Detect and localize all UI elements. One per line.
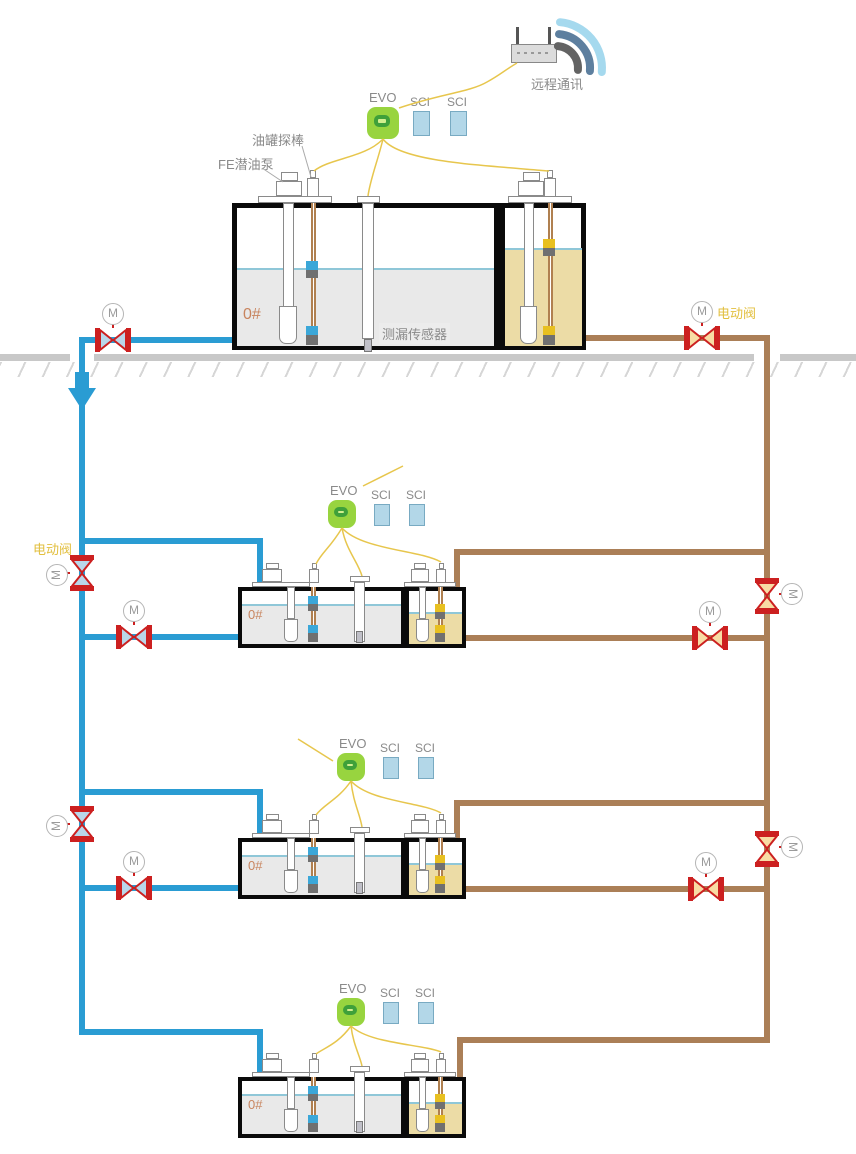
probe-head: [309, 1059, 319, 1073]
fuel-grade-label: 0#: [248, 858, 262, 873]
ground-line: [94, 354, 754, 361]
sci-module: [383, 1002, 399, 1024]
sci-module-label: SCI: [380, 986, 400, 1000]
sci-module: [418, 1002, 434, 1024]
pump-body: [284, 870, 298, 893]
pump-motor-cap: [266, 563, 279, 569]
probe-float-anchor: [306, 335, 318, 345]
valve-motor-badge: M: [46, 815, 68, 837]
valve-motor-badge: M: [123, 851, 145, 873]
tank-divider: [494, 205, 505, 348]
pump-body: [416, 1109, 429, 1132]
probe-float-anchor: [435, 1123, 445, 1132]
pump-motor: [262, 569, 282, 582]
pump-motor-cap: [414, 563, 426, 569]
pump-body: [279, 306, 297, 344]
pump-motor: [411, 820, 429, 833]
gasoline-pipe-segment: [460, 1037, 767, 1043]
pump-tube: [419, 838, 426, 870]
evo-controller-label: EVO: [369, 90, 396, 105]
pump-flange: [252, 833, 310, 838]
evo-screen-icon: [334, 507, 348, 517]
valve-motor-badge: M: [695, 852, 717, 874]
tank-divider: [401, 840, 409, 897]
probe-connector-tip: [547, 170, 553, 178]
router-led: [538, 52, 541, 54]
probe-float-anchor: [308, 604, 318, 611]
motorized-valve-icon: [114, 624, 154, 650]
probe-float: [308, 1115, 318, 1123]
motorized-valve-icon: [69, 553, 95, 593]
diesel-pipe-segment: [82, 789, 260, 795]
gasoline-pipe-segment: [457, 800, 767, 806]
probe-float-anchor: [308, 1123, 318, 1132]
motorized-valve-icon: [754, 576, 780, 616]
probe-float: [435, 1094, 445, 1102]
pump-flange: [508, 196, 572, 203]
valve-motor-badge: M: [102, 303, 124, 325]
probe-float: [308, 625, 318, 633]
motorized-valve-icon: [114, 875, 154, 901]
probe-float: [308, 847, 318, 855]
diesel-pipe-segment: [79, 337, 85, 1035]
sci-module: [409, 504, 425, 526]
router-led: [531, 52, 534, 54]
tank-probe-label: 油罐探棒: [252, 130, 304, 149]
pump-body: [520, 306, 537, 344]
evo-screen-icon: [343, 1005, 357, 1015]
gasoline-pipe-segment: [764, 335, 770, 1043]
tank-liquid-diesel: [242, 604, 401, 644]
probe-float-anchor: [435, 612, 445, 619]
probe-float: [543, 326, 555, 335]
valve-motor-badge: M: [781, 583, 803, 605]
sci-module-label: SCI: [415, 741, 435, 755]
leak-sensor-flange: [357, 196, 380, 203]
probe-float-anchor: [308, 884, 318, 893]
diesel-pipe-segment: [82, 634, 240, 640]
motorized-valve-icon: [69, 804, 95, 844]
remote-comm-label: 远程通讯: [531, 74, 583, 93]
router-led: [524, 52, 527, 54]
pump-tube: [287, 587, 295, 619]
gasoline-pipe-segment: [457, 549, 767, 555]
sci-module: [383, 757, 399, 779]
leak-sensor-flange: [350, 827, 370, 833]
pump-motor-cap: [414, 1053, 426, 1059]
pump-flange: [252, 582, 310, 587]
pump-flange: [258, 196, 332, 203]
diesel-pipe-segment: [82, 1029, 263, 1035]
tank-divider: [401, 1079, 409, 1136]
probe-float-anchor: [435, 863, 445, 870]
pump-motor-cap: [281, 172, 298, 181]
sci-module: [374, 504, 390, 526]
sci-module: [413, 111, 430, 136]
probe-float: [306, 326, 318, 335]
probe-float-anchor: [308, 855, 318, 862]
router-antenna: [548, 27, 551, 44]
probe-float: [306, 261, 318, 270]
probe-shaft: [548, 203, 553, 343]
probe-float-anchor: [308, 1094, 318, 1101]
diagram-page: { "diagram_title": "fuel-tank-monitoring…: [0, 0, 856, 1154]
motorized-valve-icon: [686, 876, 726, 902]
pump-flange: [404, 833, 456, 838]
probe-head: [309, 820, 319, 834]
evo-controller-label: EVO: [339, 981, 366, 996]
valve-motor-badge: M: [699, 601, 721, 623]
pump-motor: [411, 569, 429, 582]
evo-screen-icon: [343, 760, 357, 770]
pump-body: [416, 870, 429, 893]
ground-line: [780, 354, 856, 361]
pump-body: [284, 1109, 298, 1132]
leak-sensor-tube: [362, 203, 374, 339]
pump-motor-cap: [266, 1053, 279, 1059]
leak-sensor-flange: [350, 576, 370, 582]
sci-module-label: SCI: [406, 488, 426, 502]
leak-sensor-flange: [350, 1066, 370, 1072]
sci-module-label: SCI: [380, 741, 400, 755]
evo-screen-icon: [374, 115, 390, 127]
probe-float-anchor: [543, 248, 555, 256]
pump-tube: [524, 203, 534, 307]
probe-connector-tip: [310, 170, 316, 178]
pump-tube: [419, 587, 426, 619]
valve-motor-badge: M: [691, 301, 713, 323]
leak-sensor-label: 测漏传感器: [379, 323, 450, 344]
motorized-valve-icon: [93, 327, 133, 353]
motorized-valve-icon: [754, 829, 780, 869]
submersible-pump-label: FE潜油泵: [218, 154, 274, 173]
pump-motor: [518, 181, 544, 196]
pump-flange: [404, 582, 456, 587]
ground-line: [0, 354, 70, 361]
sci-module-label: SCI: [415, 986, 435, 1000]
pump-motor: [411, 1059, 429, 1072]
fuel-grade-label: 0#: [248, 1097, 262, 1112]
evo-controller-label: EVO: [330, 483, 357, 498]
fuel-grade-label: 0#: [248, 607, 262, 622]
evo-controller-label: EVO: [339, 736, 366, 751]
leak-sensor-tip: [356, 1121, 363, 1133]
probe-float-anchor: [308, 633, 318, 642]
wifi-signal-icon: [558, 22, 602, 72]
sci-module-label: SCI: [447, 95, 467, 109]
fuel-grade-label: 0#: [243, 306, 261, 324]
leak-sensor-tip: [356, 631, 363, 643]
probe-head: [436, 1059, 446, 1073]
pump-tube: [287, 1077, 295, 1109]
tank-divider: [401, 589, 409, 646]
pump-motor-cap: [266, 814, 279, 820]
probe-float: [308, 596, 318, 604]
probe-float-anchor: [306, 270, 318, 278]
router-led: [545, 52, 548, 54]
pump-tube: [283, 203, 294, 309]
electric-valve-label-left: 电动阀: [33, 539, 72, 558]
probe-float: [543, 239, 555, 248]
valve-motor-badge: M: [781, 836, 803, 858]
sci-module-label: SCI: [371, 488, 391, 502]
pump-motor-cap: [523, 172, 540, 181]
motorized-valve-icon: [682, 325, 722, 351]
electric-valve-label-right: 电动阀: [717, 303, 756, 322]
sci-module: [450, 111, 467, 136]
probe-float: [435, 855, 445, 863]
tank-liquid-diesel: [242, 855, 401, 895]
valve-motor-badge: M: [46, 564, 68, 586]
probe-float-anchor: [435, 1102, 445, 1109]
gasoline-pipe-segment: [586, 335, 767, 341]
pump-motor: [276, 181, 302, 196]
pump-tube: [287, 838, 295, 870]
sci-module: [418, 757, 434, 779]
leak-sensor-tip: [364, 339, 372, 352]
router-led: [517, 52, 520, 54]
probe-float: [435, 1115, 445, 1123]
pump-body: [416, 619, 429, 642]
probe-float-anchor: [435, 633, 445, 642]
valve-motor-badge: M: [123, 600, 145, 622]
leak-sensor-tip: [356, 882, 363, 894]
pump-motor-cap: [414, 814, 426, 820]
tank-liquid-diesel: [242, 1094, 401, 1134]
probe-head: [544, 178, 556, 197]
pump-flange: [252, 1072, 310, 1077]
probe-float-anchor: [435, 884, 445, 893]
ground-hatching: [0, 362, 856, 377]
probe-head: [307, 178, 319, 197]
probe-head: [309, 569, 319, 583]
diesel-pipe-segment: [82, 538, 260, 544]
pump-tube: [419, 1077, 426, 1109]
sci-module-label: SCI: [410, 95, 430, 109]
probe-float: [435, 876, 445, 884]
pump-motor: [262, 820, 282, 833]
motorized-valve-icon: [690, 625, 730, 651]
diesel-pipe-segment: [82, 885, 240, 891]
probe-head: [436, 820, 446, 834]
router-antenna: [516, 27, 519, 44]
probe-head: [436, 569, 446, 583]
probe-float: [435, 604, 445, 612]
pump-body: [284, 619, 298, 642]
pump-motor: [262, 1059, 282, 1072]
diagram-canvas: 0#0#0#0#EVOSCISCIEVOSCISCIEVOSCISCIEVOSC…: [0, 0, 856, 1154]
pump-flange: [404, 1072, 456, 1077]
probe-float-anchor: [543, 335, 555, 345]
probe-float: [308, 1086, 318, 1094]
probe-float: [435, 625, 445, 633]
probe-float: [308, 876, 318, 884]
